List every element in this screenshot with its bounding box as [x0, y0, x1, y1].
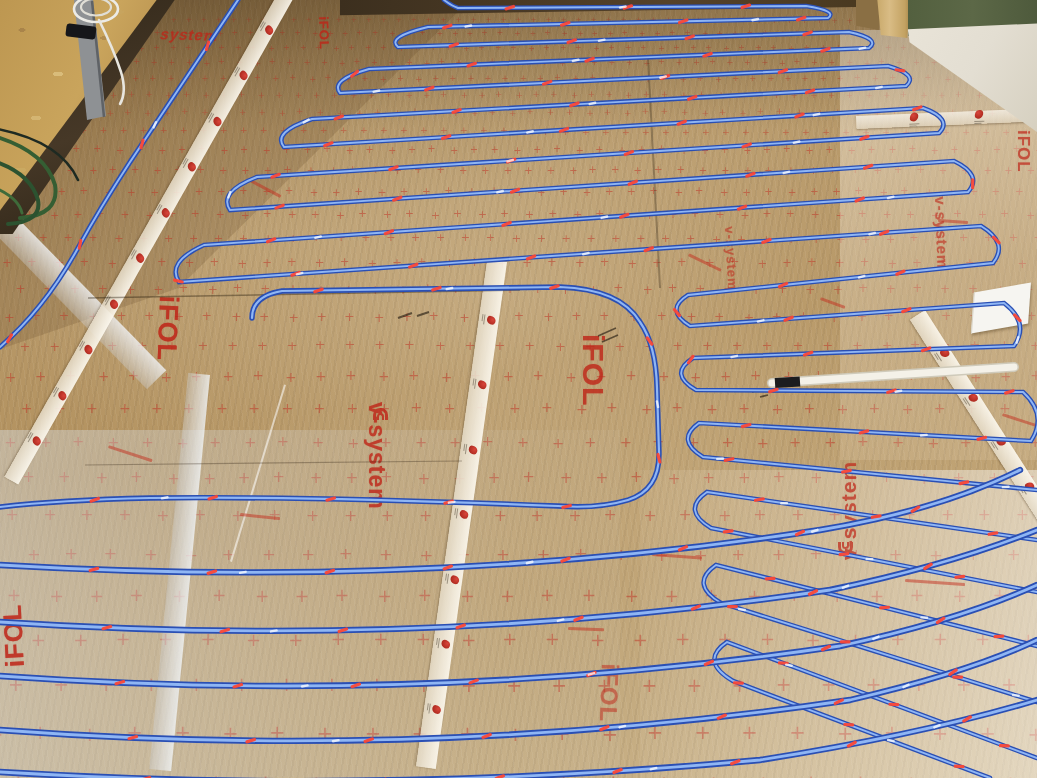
fixing-clip — [569, 101, 580, 108]
heating-cable-highlight — [0, 287, 659, 507]
fixing-clip — [627, 179, 638, 186]
fixing-clip — [733, 681, 744, 685]
fixing-clip — [392, 195, 403, 202]
fixing-clip — [971, 178, 974, 189]
fixing-clip — [702, 51, 713, 58]
fixing-clip — [687, 94, 698, 101]
fixing-clip — [783, 315, 794, 322]
heating-cable — [0, 530, 1037, 631]
green-hose — [0, 185, 22, 213]
fixing-clip — [323, 141, 334, 148]
heating-cable-highlight — [0, 585, 1037, 686]
fixing-clip — [794, 112, 805, 119]
fixing-clip — [619, 212, 630, 219]
fixing-clip — [525, 254, 536, 261]
fixing-clip — [265, 237, 276, 244]
fixing-clip — [560, 21, 571, 28]
fixing-clip — [408, 262, 419, 269]
fixing-clip — [274, 203, 285, 210]
fixing-clip — [859, 134, 870, 141]
fixing-clip — [777, 68, 788, 75]
marker-scribble — [598, 328, 618, 342]
fixing-clip — [501, 220, 512, 227]
fixing-clip — [451, 107, 462, 114]
fixing-clip — [442, 23, 453, 30]
fixing-clip — [333, 114, 344, 121]
fixing-clip — [424, 85, 435, 92]
sensor-tube-black-band — [775, 381, 800, 383]
fixing-clip — [802, 350, 813, 357]
fixing-clip — [676, 119, 687, 126]
fixing-clip — [954, 765, 965, 769]
fixing-clip — [741, 142, 752, 149]
fixing-clip — [802, 30, 813, 37]
fixing-clip — [912, 105, 923, 112]
heating-cable — [0, 287, 659, 507]
fixing-clip — [736, 204, 747, 211]
fixing-clip — [584, 56, 595, 63]
fixing-clip — [804, 88, 815, 95]
wall-fixtures-layer — [0, 0, 260, 260]
fixing-clip — [952, 675, 963, 678]
fixing-clip — [854, 196, 865, 203]
cable-glint — [780, 502, 788, 505]
fixing-clip — [440, 134, 451, 141]
fixing-clip — [901, 307, 912, 314]
fixing-clip — [541, 79, 552, 86]
photo-underfloor-heating: ++++++++++++++++++++++++++++++++++++++++… — [0, 0, 1037, 778]
fixing-clip — [888, 703, 899, 707]
foil-crease — [85, 461, 462, 465]
fixing-clip — [863, 163, 874, 170]
fixing-clip — [558, 126, 569, 133]
green-hose — [0, 128, 78, 180]
fixing-clip — [878, 229, 889, 236]
marker-scribble — [398, 312, 429, 318]
fixing-clip — [761, 237, 772, 244]
fixing-clip — [383, 229, 394, 236]
fixing-clip — [448, 42, 459, 49]
cable-glint — [865, 558, 873, 561]
fixing-clip — [795, 15, 806, 22]
fixing-clip — [843, 723, 854, 727]
fixing-clip — [509, 187, 520, 194]
fixing-clip — [643, 246, 654, 253]
fixing-clip — [745, 171, 756, 178]
fixing-clip — [466, 61, 477, 68]
fixing-clip — [727, 605, 738, 608]
fixing-clip — [678, 18, 689, 25]
foil-crease — [648, 58, 660, 288]
fixing-clip — [920, 346, 931, 353]
fixing-clip — [999, 744, 1010, 748]
fixing-clip — [840, 640, 851, 643]
fixing-clip — [820, 46, 831, 53]
fixing-clip — [623, 149, 634, 156]
fixing-clip — [566, 38, 577, 45]
fixing-clip — [270, 172, 281, 179]
fixing-clip — [684, 34, 695, 41]
fixing-clip — [388, 165, 399, 172]
sensor-tube — [772, 367, 1014, 383]
